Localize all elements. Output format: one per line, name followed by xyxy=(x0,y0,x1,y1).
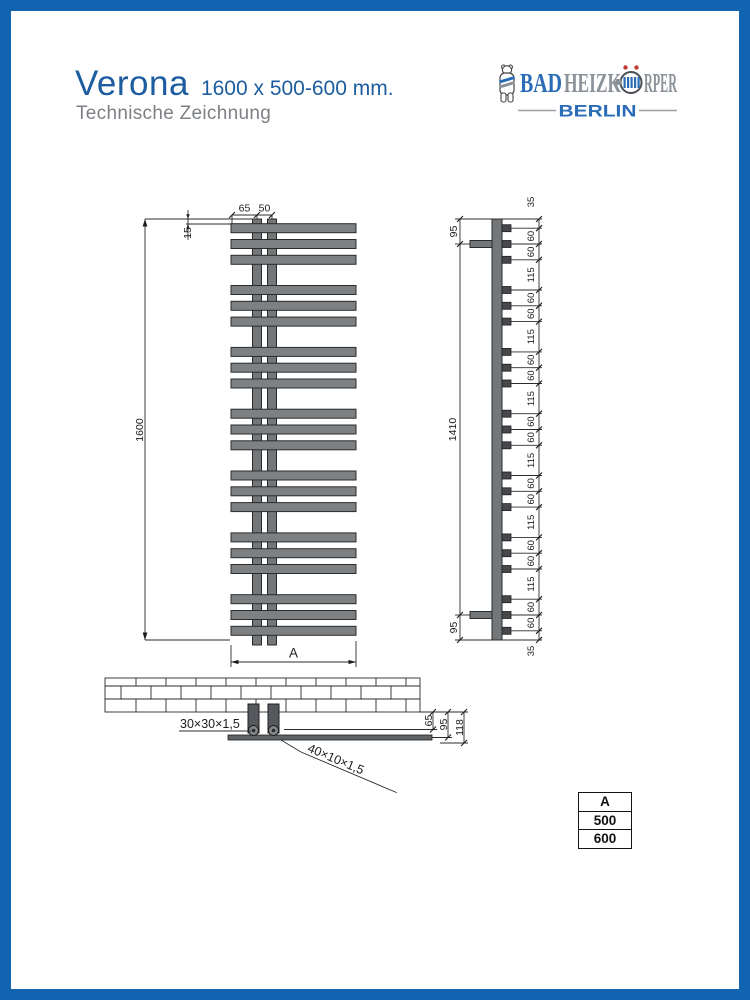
radiator-bar xyxy=(231,379,356,388)
side-chain-dim-label: 60 xyxy=(526,355,537,366)
page: Verona 1600 x 500-600 mm. Technische Zei… xyxy=(0,0,750,1000)
screw-center xyxy=(272,729,276,733)
radiator-bar xyxy=(231,565,356,574)
side-chain-dim-label: 60 xyxy=(526,494,537,505)
side-chain-dim-label: 60 xyxy=(526,602,537,613)
side-chain-dim-label: 60 xyxy=(526,247,537,258)
side-chain-dim-label: 115 xyxy=(526,329,537,344)
radiator-bar xyxy=(231,240,356,249)
size-table: A 500 600 xyxy=(578,792,632,849)
screw-center xyxy=(252,729,256,733)
radiator-bar-side xyxy=(502,426,511,433)
radiator-bar-side xyxy=(502,364,511,371)
side-chain-dim-label: 115 xyxy=(526,267,537,282)
label-flat-bar: 40×10×1,5 xyxy=(306,741,367,777)
radiator-bar-side xyxy=(502,318,511,325)
radiator-bar-side xyxy=(502,442,511,449)
size-table-header: A xyxy=(579,793,631,811)
side-chain-dim-label: 60 xyxy=(526,556,537,567)
side-chain-dim-label: 60 xyxy=(526,416,537,427)
dim-label-95-top: 95 xyxy=(448,226,460,238)
radiator-bar-side xyxy=(502,410,511,417)
label-flat-bar-group: 40×10×1,5 xyxy=(301,739,402,793)
radiator-bar xyxy=(231,363,356,372)
side-chain-dim-label: 60 xyxy=(526,432,537,443)
logo-text-rper: RPER xyxy=(644,68,677,98)
radiator-bar xyxy=(231,317,356,326)
radiator-bar-side xyxy=(502,627,511,634)
radiator-bar xyxy=(231,409,356,418)
side-chain-dim-label: 60 xyxy=(526,478,537,489)
radiator-bar-side xyxy=(502,534,511,541)
radiator-bar xyxy=(231,441,356,450)
wall-section xyxy=(105,678,420,712)
side-tube xyxy=(492,219,502,640)
company-logo: BAD HEIZK RPER BERLIN xyxy=(488,58,718,133)
side-chain-dim-label: 115 xyxy=(526,391,537,406)
radiator-bar-side xyxy=(502,256,511,263)
dim-label-65-depth: 65 xyxy=(423,715,435,727)
radiator-bar-side xyxy=(502,596,511,603)
radiator-bar xyxy=(231,224,356,233)
side-chain-dim-label: 115 xyxy=(526,577,537,592)
label-square-tube: 30×30×1,5 xyxy=(180,717,240,731)
side-chain-dim-label: 60 xyxy=(526,231,537,242)
dim-label-95-depth: 95 xyxy=(438,719,450,731)
radiator-bar xyxy=(231,533,356,542)
radiator-bar-side xyxy=(502,488,511,495)
radiator-bar xyxy=(231,301,356,310)
logo-text-bad: BAD xyxy=(520,68,562,98)
flat-bar-section xyxy=(228,735,432,740)
radiator-bar xyxy=(231,595,356,604)
dim-label-15: 15 xyxy=(182,227,194,239)
radiator-bar-side xyxy=(502,348,511,355)
logo-city: BERLIN xyxy=(559,102,637,121)
dim-label-118-depth: 118 xyxy=(454,719,466,736)
radiator-bar xyxy=(231,425,356,434)
radiator-bar-side xyxy=(502,504,511,511)
radiator-bar xyxy=(231,286,356,295)
side-chain-dim-label: 60 xyxy=(526,308,537,319)
size-table-row: 600 xyxy=(579,829,631,848)
radiator-bar xyxy=(231,503,356,512)
radiator-bar-side xyxy=(502,287,511,294)
dim-label-A: A xyxy=(289,646,298,661)
radiator-bar-side xyxy=(502,550,511,557)
berlin-bear-logo-icon xyxy=(500,65,515,102)
front-view: 65 50 15 1600 A xyxy=(134,203,356,668)
wall-bracket-top xyxy=(470,241,492,248)
detail-view: 65 95 118 30×30×1,5 40×10×1,5 xyxy=(105,678,468,793)
radiator-bar xyxy=(231,626,356,635)
side-chain-dim-label: 60 xyxy=(526,370,537,381)
side-chain-dim-label: 35 xyxy=(526,646,537,657)
radiator-bar-side xyxy=(502,380,511,387)
radiator-bar xyxy=(231,611,356,620)
side-chain-dim-label: 60 xyxy=(526,618,537,629)
side-chain-dim-label: 60 xyxy=(526,293,537,304)
wall-bracket-bottom xyxy=(470,612,492,619)
radiator-bar-side xyxy=(502,241,511,248)
size-table-row: 500 xyxy=(579,811,631,830)
radiator-bar-side xyxy=(502,302,511,309)
dim-label-50: 50 xyxy=(259,203,271,215)
radiator-bar xyxy=(231,347,356,356)
radiator-bar-side xyxy=(502,612,511,619)
radiator-bar-side xyxy=(502,566,511,573)
side-chain-dim-label: 115 xyxy=(526,515,537,530)
radiator-bar-side xyxy=(502,472,511,479)
side-chain-dim-label: 35 xyxy=(526,197,537,208)
side-chain-dim-label: 115 xyxy=(526,453,537,468)
side-view: 95 1410 95 35606011560601156060115606011… xyxy=(447,197,542,657)
dim-label-1600: 1600 xyxy=(134,418,146,442)
radiator-bar xyxy=(231,487,356,496)
radiator-bar xyxy=(231,471,356,480)
radiator-bar xyxy=(231,255,356,264)
side-chain-dim-label: 60 xyxy=(526,540,537,551)
dim-label-65: 65 xyxy=(239,203,251,215)
radiator-bar-side xyxy=(502,225,511,232)
dim-label-95-bottom: 95 xyxy=(448,622,460,634)
logo-text-heizk: HEIZK xyxy=(564,68,621,98)
dim-label-1410: 1410 xyxy=(447,418,459,442)
radiator-bar xyxy=(231,549,356,558)
